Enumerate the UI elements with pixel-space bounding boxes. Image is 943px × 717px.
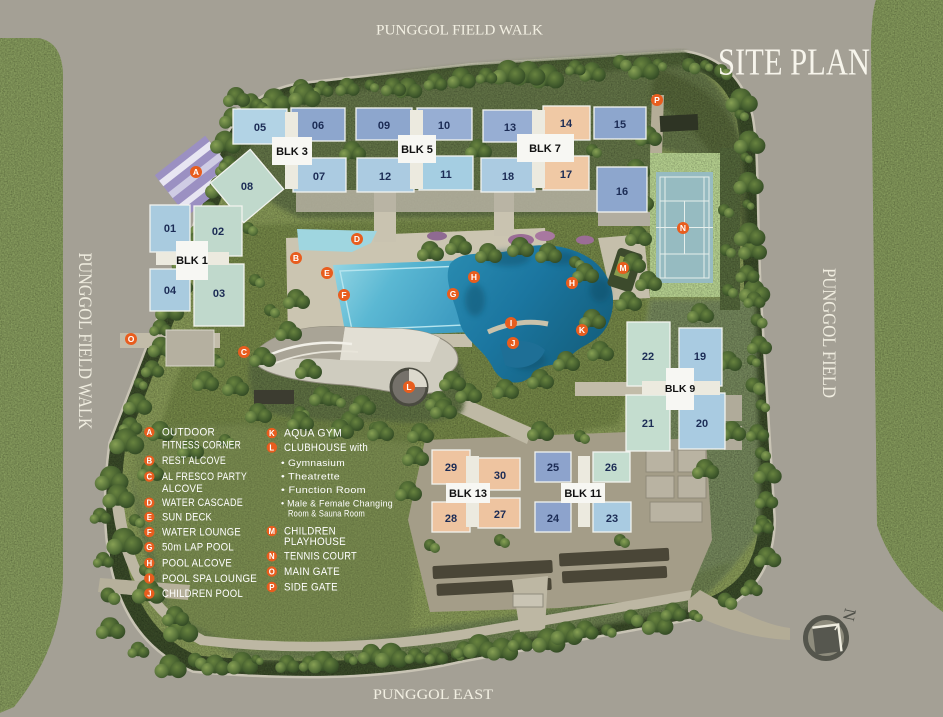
svg-text:05: 05 bbox=[254, 122, 266, 134]
svg-text:F: F bbox=[147, 528, 152, 537]
svg-text:29: 29 bbox=[445, 462, 457, 474]
svg-text:PUNGGOL FIELD: PUNGGOL FIELD bbox=[818, 268, 839, 398]
svg-text:L: L bbox=[269, 443, 274, 452]
svg-text:10: 10 bbox=[438, 120, 450, 132]
svg-text:26: 26 bbox=[605, 462, 617, 474]
svg-text:CHILDREN POOL: CHILDREN POOL bbox=[162, 588, 243, 600]
svg-text:PUNGGOL FIELD WALK: PUNGGOL FIELD WALK bbox=[74, 253, 95, 430]
svg-text:17: 17 bbox=[560, 169, 572, 181]
svg-text:L: L bbox=[406, 382, 411, 392]
svg-text:OUTDOOR: OUTDOOR bbox=[162, 427, 215, 439]
svg-text:12: 12 bbox=[379, 171, 391, 183]
svg-text:H: H bbox=[146, 559, 152, 568]
svg-text:Room & Sauna Room: Room & Sauna Room bbox=[288, 509, 365, 520]
svg-text:E: E bbox=[324, 268, 330, 278]
svg-text:BLK 1: BLK 1 bbox=[176, 255, 208, 267]
svg-text:G: G bbox=[450, 289, 457, 299]
svg-text:F: F bbox=[341, 290, 346, 300]
svg-text:03: 03 bbox=[213, 288, 225, 300]
svg-text:SUN DECK: SUN DECK bbox=[162, 511, 212, 523]
svg-text:13: 13 bbox=[504, 122, 516, 134]
svg-text:E: E bbox=[147, 513, 152, 522]
svg-text:01: 01 bbox=[164, 223, 176, 235]
svg-text:C: C bbox=[241, 347, 247, 357]
svg-text:16: 16 bbox=[616, 186, 628, 198]
svg-text:H: H bbox=[569, 278, 575, 288]
svg-text:WATER CASCADE: WATER CASCADE bbox=[162, 497, 243, 509]
svg-text:PUNGGOL EAST: PUNGGOL EAST bbox=[373, 687, 493, 703]
svg-text:20: 20 bbox=[696, 418, 708, 430]
svg-text:04: 04 bbox=[164, 285, 177, 297]
svg-text:18: 18 bbox=[502, 171, 514, 183]
svg-text:24: 24 bbox=[547, 513, 560, 525]
svg-text:N: N bbox=[680, 223, 686, 233]
svg-text:POOL SPA LOUNGE: POOL SPA LOUNGE bbox=[162, 573, 257, 585]
svg-text:D: D bbox=[354, 234, 360, 244]
svg-text:P: P bbox=[654, 95, 660, 105]
svg-text:AL FRESCO PARTY: AL FRESCO PARTY bbox=[162, 471, 247, 483]
svg-text:19: 19 bbox=[694, 351, 706, 363]
svg-text:WATER LOUNGE: WATER LOUNGE bbox=[162, 526, 241, 538]
svg-text:BLK 11: BLK 11 bbox=[564, 488, 601, 500]
svg-text:27: 27 bbox=[494, 509, 506, 521]
svg-text:BLK 3: BLK 3 bbox=[276, 146, 308, 158]
svg-text:PLAYHOUSE: PLAYHOUSE bbox=[284, 536, 346, 548]
svg-text:15: 15 bbox=[614, 119, 626, 131]
svg-text:J: J bbox=[147, 590, 151, 599]
svg-text:22: 22 bbox=[642, 351, 654, 363]
svg-text:• Function Room: • Function Room bbox=[281, 485, 366, 496]
svg-text:M: M bbox=[619, 263, 626, 273]
svg-text:B: B bbox=[293, 253, 299, 263]
svg-text:SIDE GATE: SIDE GATE bbox=[284, 581, 338, 593]
svg-text:BLK 13: BLK 13 bbox=[449, 488, 487, 500]
svg-text:B: B bbox=[146, 457, 152, 466]
svg-text:25: 25 bbox=[547, 462, 559, 474]
svg-text:MAIN GATE: MAIN GATE bbox=[284, 566, 340, 578]
svg-text:REST ALCOVE: REST ALCOVE bbox=[162, 455, 226, 467]
svg-text:TENNIS COURT: TENNIS COURT bbox=[284, 551, 357, 563]
svg-text:O: O bbox=[128, 334, 135, 344]
svg-text:• Theatrette: • Theatrette bbox=[281, 472, 340, 483]
svg-text:• Gymnasium: • Gymnasium bbox=[281, 458, 345, 469]
svg-text:G: G bbox=[146, 543, 152, 552]
svg-text:30: 30 bbox=[494, 470, 506, 482]
svg-text:H: H bbox=[471, 272, 477, 282]
svg-text:CLUBHOUSE with: CLUBHOUSE with bbox=[284, 442, 368, 454]
svg-text:23: 23 bbox=[606, 513, 618, 525]
svg-text:POOL ALCOVE: POOL ALCOVE bbox=[162, 557, 232, 569]
svg-text:BLK 5: BLK 5 bbox=[401, 144, 433, 156]
svg-text:21: 21 bbox=[642, 418, 654, 430]
svg-text:O: O bbox=[269, 567, 275, 576]
svg-text:I: I bbox=[148, 574, 150, 583]
svg-text:K: K bbox=[579, 325, 586, 335]
svg-text:I: I bbox=[510, 318, 512, 328]
svg-text:C: C bbox=[146, 473, 152, 482]
svg-text:BLK 7: BLK 7 bbox=[529, 143, 561, 155]
svg-text:BLK 9: BLK 9 bbox=[665, 383, 695, 395]
svg-text:N: N bbox=[269, 552, 275, 561]
svg-text:AQUA GYM: AQUA GYM bbox=[284, 428, 342, 440]
svg-text:02: 02 bbox=[212, 226, 224, 238]
svg-text:ALCOVE: ALCOVE bbox=[162, 483, 203, 495]
svg-text:09: 09 bbox=[378, 120, 390, 132]
svg-text:J: J bbox=[511, 338, 516, 348]
svg-text:11: 11 bbox=[440, 169, 452, 181]
svg-text:08: 08 bbox=[241, 181, 253, 193]
svg-text:07: 07 bbox=[313, 171, 325, 183]
svg-text:28: 28 bbox=[445, 513, 457, 525]
svg-text:50m LAP POOL: 50m LAP POOL bbox=[162, 542, 234, 554]
svg-text:D: D bbox=[146, 499, 152, 508]
svg-text:K: K bbox=[269, 429, 275, 438]
svg-text:A: A bbox=[146, 428, 152, 437]
svg-text:14: 14 bbox=[560, 118, 573, 130]
svg-text:P: P bbox=[269, 583, 274, 592]
svg-text:06: 06 bbox=[312, 120, 324, 132]
svg-text:A: A bbox=[193, 167, 199, 177]
svg-text:PUNGGOL FIELD WALK: PUNGGOL FIELD WALK bbox=[376, 23, 543, 39]
svg-text:SITE PLAN: SITE PLAN bbox=[718, 42, 870, 84]
svg-text:M: M bbox=[269, 527, 276, 536]
svg-text:FITNESS CORNER: FITNESS CORNER bbox=[162, 439, 241, 451]
